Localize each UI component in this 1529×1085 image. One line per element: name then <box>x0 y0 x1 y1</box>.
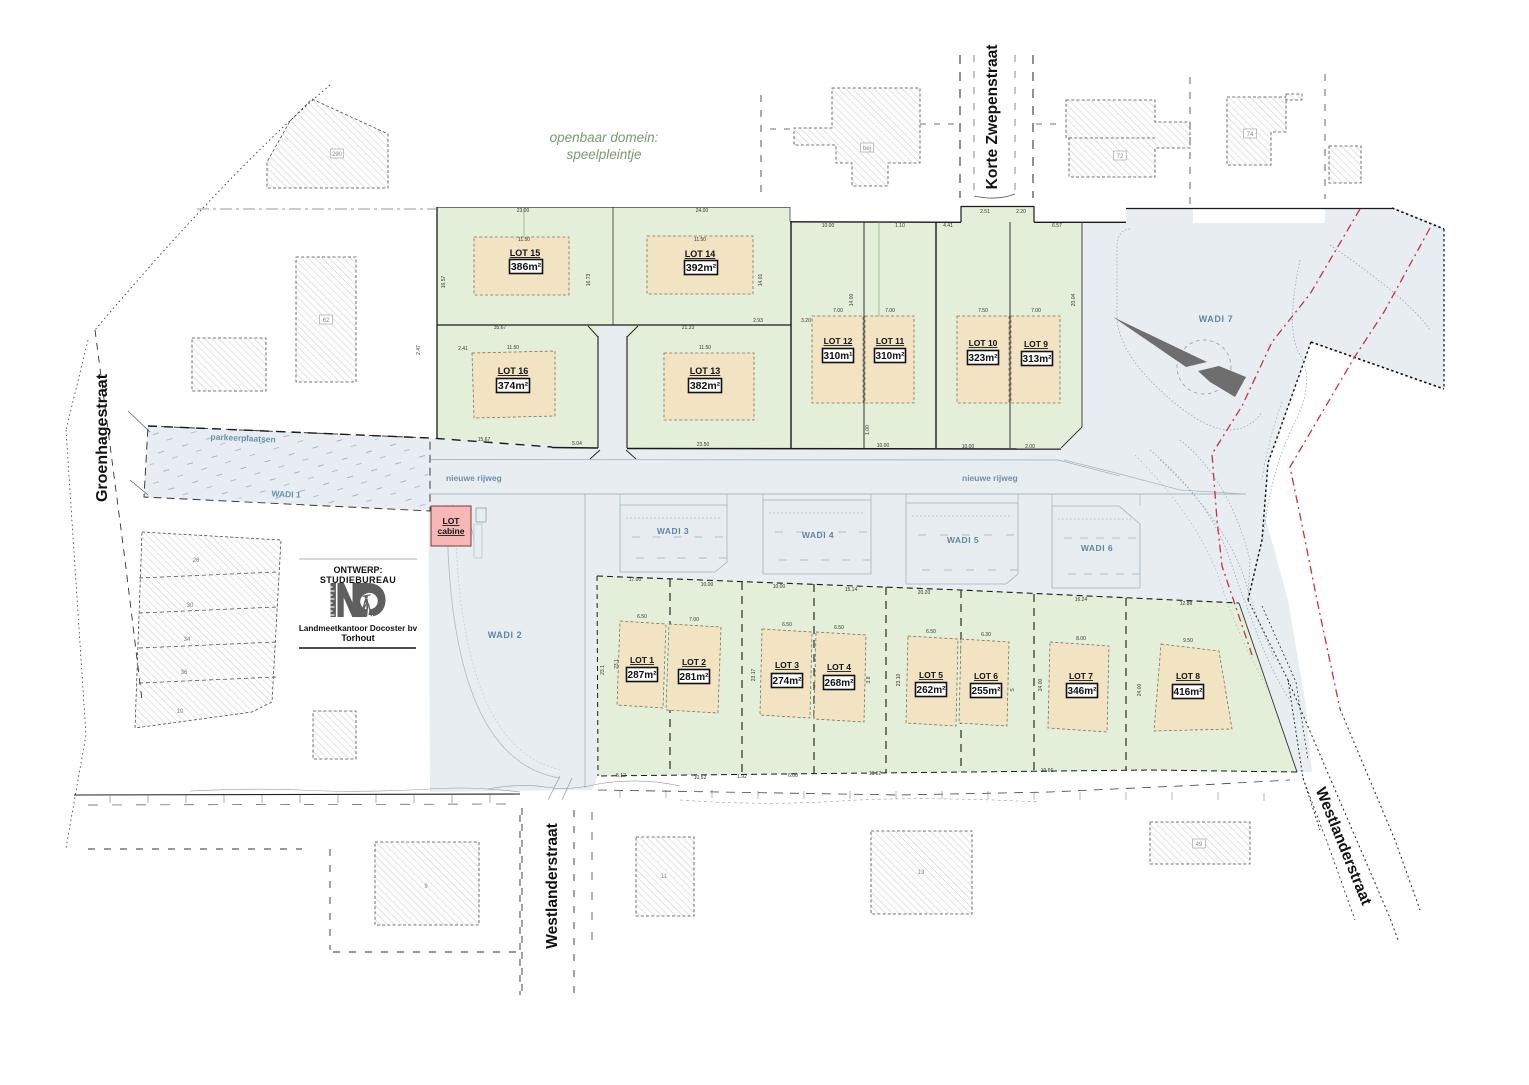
svg-text:24.00: 24.00 <box>1137 684 1143 697</box>
svg-text:8.00: 8.00 <box>1076 636 1086 642</box>
svg-text:310m²: 310m² <box>876 351 906 362</box>
svg-text:11.50: 11.50 <box>518 237 530 243</box>
svg-text:15.14: 15.14 <box>845 587 858 593</box>
svg-text:255m²: 255m² <box>972 686 1002 697</box>
svg-text:LOT 10: LOT 10 <box>969 338 998 348</box>
svg-text:LOT 7: LOT 7 <box>1069 671 1093 681</box>
svg-text:10.00: 10.00 <box>701 582 714 588</box>
svg-text:72: 72 <box>1117 154 1124 160</box>
svg-text:20.20: 20.20 <box>918 590 931 596</box>
svg-text:23.50: 23.50 <box>697 442 710 448</box>
svg-text:36: 36 <box>181 670 188 676</box>
svg-text:16.24: 16.24 <box>1075 597 1088 603</box>
svg-text:3.20: 3.20 <box>801 318 811 324</box>
svg-text:LOT: LOT <box>443 516 461 526</box>
svg-text:9.50: 9.50 <box>1183 638 1193 644</box>
svg-text:6.30: 6.30 <box>981 632 991 638</box>
svg-text:7.00: 7.00 <box>689 617 699 623</box>
svg-text:16.73: 16.73 <box>586 274 592 287</box>
svg-text:14.00: 14.00 <box>849 294 855 307</box>
svg-text:16.57: 16.57 <box>441 276 447 289</box>
svg-text:11.50: 11.50 <box>507 345 519 351</box>
svg-text:20.04: 20.04 <box>1071 294 1077 307</box>
svg-text:LOT 2: LOT 2 <box>682 657 706 667</box>
svg-text:290: 290 <box>332 152 343 158</box>
svg-text:10.52: 10.52 <box>694 775 707 781</box>
svg-text:1.00: 1.00 <box>865 425 871 435</box>
svg-text:6.57: 6.57 <box>1052 223 1062 229</box>
svg-text:LOT 11: LOT 11 <box>876 336 905 346</box>
svg-text:74: 74 <box>1247 132 1254 138</box>
svg-text:11.50: 11.50 <box>694 237 706 243</box>
svg-text:1.10: 1.10 <box>895 223 905 229</box>
svg-text:24.00: 24.00 <box>1038 679 1044 692</box>
svg-text:WADI 5: WADI 5 <box>947 535 979 545</box>
svg-text:LOT 12: LOT 12 <box>824 336 853 346</box>
svg-text:313m²: 313m² <box>1023 354 1053 365</box>
svg-text:2.00: 2.00 <box>1025 444 1035 450</box>
svg-text:14.01: 14.01 <box>758 274 764 287</box>
svg-text:LOT 3: LOT 3 <box>775 660 799 670</box>
svg-text:LOT 14: LOT 14 <box>685 249 716 259</box>
svg-text:7.00: 7.00 <box>833 308 843 314</box>
svg-text:2.47: 2.47 <box>416 345 422 355</box>
svg-text:11: 11 <box>661 874 668 880</box>
svg-text:5.04: 5.04 <box>572 441 582 447</box>
svg-text:LOT 9: LOT 9 <box>1024 339 1048 349</box>
svg-text:bej: bej <box>863 146 871 152</box>
svg-text:23.1: 23.1 <box>614 659 620 669</box>
svg-text:35.67: 35.67 <box>494 325 507 331</box>
svg-text:392m²: 392m² <box>686 262 717 274</box>
svg-text:nieuwe rijweg: nieuwe rijweg <box>962 473 1018 483</box>
svg-text:386m²: 386m² <box>511 261 542 273</box>
svg-text:7.00: 7.00 <box>885 308 895 314</box>
svg-text:LOT 5: LOT 5 <box>919 670 943 680</box>
svg-text:23.17: 23.17 <box>751 669 757 682</box>
svg-text:6.00: 6.00 <box>788 773 798 779</box>
svg-text:10.00: 10.00 <box>822 223 835 229</box>
svg-text:WADI 6: WADI 6 <box>1081 543 1113 553</box>
svg-text:10.00: 10.00 <box>773 584 786 590</box>
svg-text:4.41: 4.41 <box>943 223 953 229</box>
svg-text:Korte Zwepenstraat: Korte Zwepenstraat <box>984 45 1001 190</box>
svg-text:23.10: 23.10 <box>896 674 902 687</box>
svg-text:speelpleintje: speelpleintje <box>566 147 641 162</box>
svg-text:nieuwe rijweg: nieuwe rijweg <box>446 473 502 483</box>
svg-text:WADI 2: WADI 2 <box>488 630 523 640</box>
svg-text:281m²: 281m² <box>680 672 710 683</box>
svg-text:7.50: 7.50 <box>978 308 988 314</box>
svg-text:Torhout: Torhout <box>341 633 374 643</box>
svg-text:268m²: 268m² <box>825 678 855 689</box>
svg-text:374m²: 374m² <box>498 380 529 392</box>
svg-text:6.50: 6.50 <box>926 629 936 635</box>
svg-text:274m²: 274m² <box>773 676 803 687</box>
svg-text:5.12: 5.12 <box>616 773 626 779</box>
svg-text:11.50: 11.50 <box>699 345 711 351</box>
svg-text:openbaar domein:: openbaar domein: <box>550 130 659 145</box>
svg-text:Westlanderstraat: Westlanderstraat <box>544 823 561 948</box>
svg-text:LOT 15: LOT 15 <box>510 248 541 258</box>
svg-text:2.20: 2.20 <box>1016 209 1026 215</box>
svg-text:10.00: 10.00 <box>962 444 975 450</box>
svg-text:10: 10 <box>177 709 184 715</box>
svg-text:10.00: 10.00 <box>877 443 890 449</box>
svg-text:3.8: 3.8 <box>866 676 872 683</box>
svg-text:13: 13 <box>918 870 925 876</box>
svg-text:WADI 7: WADI 7 <box>1199 314 1234 324</box>
svg-text:LOT 1: LOT 1 <box>630 655 654 665</box>
svg-text:Groenhagestraat: Groenhagestraat <box>94 373 111 502</box>
svg-text:15.67: 15.67 <box>478 437 491 443</box>
svg-text:10.66: 10.66 <box>1041 768 1054 774</box>
svg-text:26: 26 <box>193 558 200 564</box>
svg-text:7.00: 7.00 <box>1031 308 1041 314</box>
svg-text:WADI 1: WADI 1 <box>271 488 301 499</box>
svg-text:WADI 3: WADI 3 <box>657 526 689 536</box>
svg-text:17.00: 17.00 <box>629 577 642 583</box>
svg-text:2.93: 2.93 <box>753 318 763 324</box>
svg-text:LOT 13: LOT 13 <box>690 366 721 376</box>
svg-text:Landmeetkantoor Docoster bv: Landmeetkantoor Docoster bv <box>299 624 418 633</box>
svg-text:ONTWERP:: ONTWERP: <box>334 565 383 575</box>
svg-text:6.50: 6.50 <box>637 614 647 620</box>
svg-text:cabine: cabine <box>438 526 465 536</box>
svg-text:416m²: 416m² <box>1174 687 1204 698</box>
svg-text:62: 62 <box>323 318 330 324</box>
svg-text:2.51: 2.51 <box>980 209 990 215</box>
svg-text:34: 34 <box>184 637 191 643</box>
svg-text:21.33: 21.33 <box>682 325 695 331</box>
svg-text:LOT 4: LOT 4 <box>827 662 851 672</box>
svg-text:1.92: 1.92 <box>737 774 747 780</box>
svg-text:13.62: 13.62 <box>869 771 882 777</box>
svg-text:12.88: 12.88 <box>1180 601 1193 607</box>
svg-text:310m¹: 310m¹ <box>824 351 854 362</box>
svg-text:6.50: 6.50 <box>834 625 844 631</box>
svg-text:23.00: 23.00 <box>517 208 530 214</box>
svg-text:LOT 8: LOT 8 <box>1176 671 1200 681</box>
svg-text:2.41: 2.41 <box>458 346 468 352</box>
svg-text:262m²: 262m² <box>917 685 947 696</box>
svg-text:287m²: 287m² <box>628 670 658 681</box>
svg-text:LOT 16: LOT 16 <box>498 366 529 376</box>
svg-text:WADI 4: WADI 4 <box>802 530 834 540</box>
svg-text:24.00: 24.00 <box>696 208 709 214</box>
svg-text:6.50: 6.50 <box>782 622 792 628</box>
svg-text:382m²: 382m² <box>690 380 721 392</box>
svg-text:LOT 6: LOT 6 <box>974 671 998 681</box>
svg-text:323m²: 323m² <box>969 353 999 364</box>
svg-text:49: 49 <box>1196 842 1203 848</box>
svg-text:23.1: 23.1 <box>600 665 606 675</box>
svg-text:346m²: 346m² <box>1068 686 1098 697</box>
svg-text:30: 30 <box>187 603 194 609</box>
